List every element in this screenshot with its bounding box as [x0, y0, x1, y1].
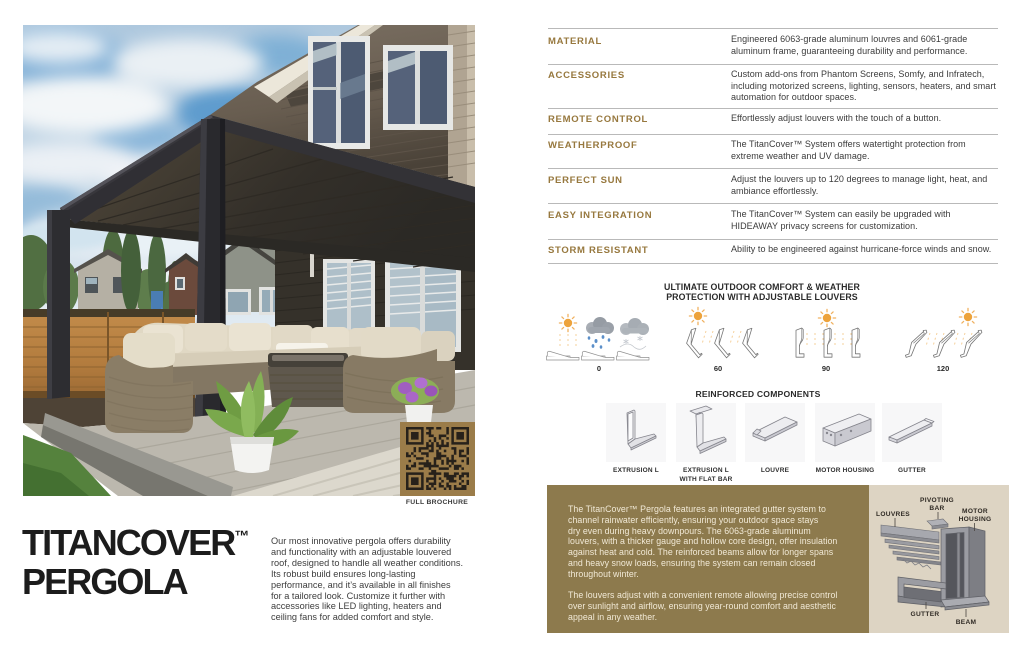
svg-text:LOUVRES: LOUVRES — [876, 511, 910, 518]
svg-text:0: 0 — [597, 364, 601, 373]
svg-text:MOTOR: MOTOR — [962, 508, 988, 515]
svg-text:EXTRUSION L: EXTRUSION L — [613, 467, 659, 474]
svg-text:GUTTER: GUTTER — [898, 467, 926, 474]
svg-text:BAR: BAR — [929, 505, 944, 512]
svg-text:PIVOTING: PIVOTING — [920, 497, 954, 504]
svg-text:MOTOR HOUSING: MOTOR HOUSING — [816, 467, 875, 474]
svg-text:HOUSING: HOUSING — [959, 516, 992, 523]
svg-text:120: 120 — [937, 364, 950, 373]
svg-text:BEAM: BEAM — [956, 619, 977, 626]
svg-text:90: 90 — [822, 364, 830, 373]
svg-text:GUTTER: GUTTER — [911, 611, 940, 618]
svg-text:60: 60 — [714, 364, 722, 373]
svg-text:LOUVRE: LOUVRE — [761, 467, 790, 474]
svg-text:WITH FLAT BAR: WITH FLAT BAR — [679, 476, 732, 483]
svg-text:EXTRUSION L: EXTRUSION L — [683, 467, 729, 474]
